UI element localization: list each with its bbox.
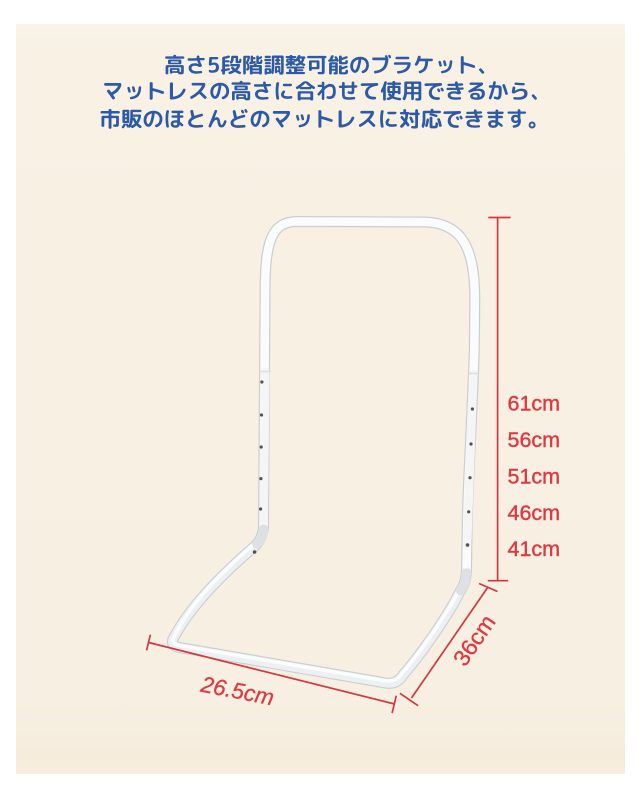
svg-text:56cm: 56cm (508, 428, 561, 452)
svg-text:51cm: 51cm (508, 464, 561, 488)
svg-text:41cm: 41cm (508, 537, 561, 561)
svg-text:61cm: 61cm (508, 392, 561, 416)
svg-text:46cm: 46cm (508, 501, 561, 525)
